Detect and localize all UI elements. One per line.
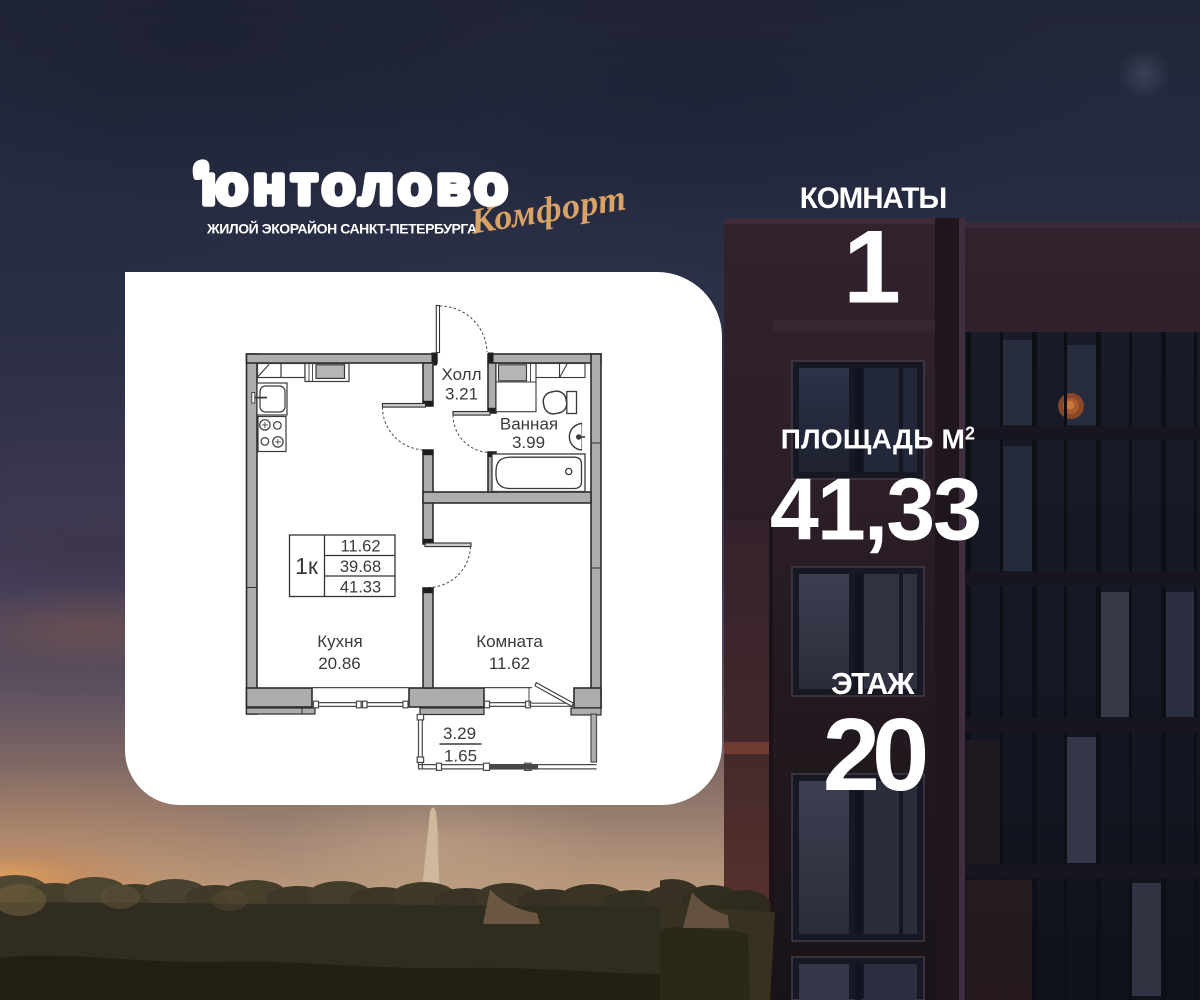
svg-text:20.86: 20.86 [318,654,361,673]
svg-text:Комната: Комната [476,632,543,651]
svg-text:41.33: 41.33 [340,578,381,596]
svg-text:1.65: 1.65 [444,747,477,766]
svg-text:1к: 1к [295,553,319,579]
svg-text:41,33: 41,33 [770,460,980,559]
svg-text:3.99: 3.99 [512,433,545,452]
svg-text:Холл: Холл [441,365,481,384]
svg-text:11.62: 11.62 [340,538,380,556]
svg-text:20: 20 [823,697,926,810]
svg-text:39.68: 39.68 [340,558,381,576]
svg-text:Кухня: Кухня [317,632,363,651]
svg-text:11.62: 11.62 [489,654,530,673]
svg-text:3.21: 3.21 [445,385,478,404]
svg-text:1: 1 [843,210,901,326]
svg-text:ЭТАЖ: ЭТАЖ [831,667,915,701]
svg-text:Ванная: Ванная [500,415,558,434]
svg-text:ЖИЛОЙ ЭКОРАЙОН САНКТ-ПЕТЕРБУРГ: ЖИЛОЙ ЭКОРАЙОН САНКТ-ПЕТЕРБУРГА [206,220,477,237]
svg-text:3.29: 3.29 [443,724,476,743]
svg-text:ПЛОЩАДЬ М2: ПЛОЩАДЬ М2 [781,424,976,455]
svg-text:юнтолово: юнтолово [201,154,513,216]
